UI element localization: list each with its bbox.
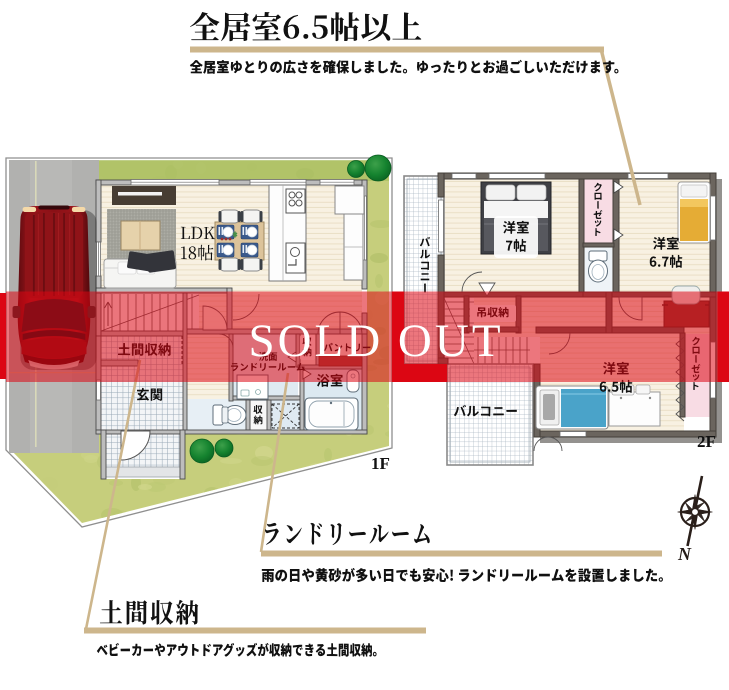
svg-text:N: N [677, 544, 692, 564]
svg-text:1F: 1F [371, 454, 390, 473]
svg-text:2F: 2F [697, 432, 716, 451]
svg-text:SOLD OUT: SOLD OUT [248, 315, 503, 367]
